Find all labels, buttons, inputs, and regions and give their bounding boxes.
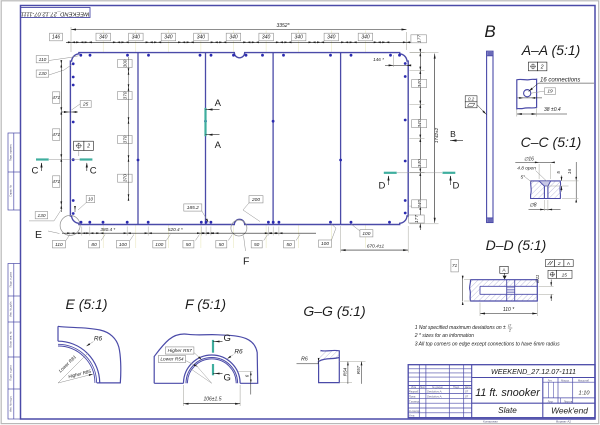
svg-text:50: 50 <box>254 242 260 248</box>
svg-text:380.4 *: 380.4 * <box>100 227 115 232</box>
svg-text:Инв. № дубл.: Инв. № дубл. <box>9 301 13 317</box>
svg-text:G–G (5:1): G–G (5:1) <box>303 303 365 319</box>
svg-text:71: 71 <box>452 263 458 268</box>
svg-text:1742±2: 1742±2 <box>434 127 439 143</box>
svg-text:100: 100 <box>321 241 329 247</box>
svg-text:Slate: Slate <box>498 406 517 415</box>
svg-text:C–C (5:1): C–C (5:1) <box>521 134 582 150</box>
svg-text:C: C <box>32 166 39 177</box>
svg-text:340: 340 <box>361 35 370 41</box>
svg-text:WEEKEND_27.12.07-1111: WEEKEND_27.12.07-1111 <box>491 367 576 376</box>
svg-text:0.2: 0.2 <box>468 97 475 102</box>
svg-text:110: 110 <box>39 57 47 63</box>
svg-text:370: 370 <box>123 174 128 182</box>
svg-text:1:10: 1:10 <box>579 390 591 396</box>
svg-text:D–D (5:1): D–D (5:1) <box>486 237 547 253</box>
svg-text:Lower R54: Lower R54 <box>160 357 184 363</box>
svg-text:38 ±0.4: 38 ±0.4 <box>544 107 561 113</box>
svg-text:19: 19 <box>547 89 553 95</box>
svg-text:340: 340 <box>295 35 304 41</box>
svg-text:Копировал: Копировал <box>483 420 498 424</box>
svg-text:100: 100 <box>362 231 370 237</box>
svg-text:№ докум.: № докум. <box>432 386 444 389</box>
svg-text:A: A <box>215 140 222 151</box>
svg-text:Serdobov A.: Serdobov A. <box>427 394 443 398</box>
svg-text:Н.контр.: Н.контр. <box>409 409 421 413</box>
svg-text:110 *: 110 * <box>503 307 515 313</box>
svg-text:471: 471 <box>52 132 60 137</box>
svg-text:Serdobov A.: Serdobov A. <box>427 390 443 394</box>
svg-text:D: D <box>453 181 460 192</box>
svg-text:340: 340 <box>327 35 336 41</box>
svg-text:07: 07 <box>465 394 469 398</box>
svg-text:4.8 open: 4.8 open <box>517 165 536 171</box>
svg-text:471: 471 <box>52 95 60 100</box>
svg-text:E: E <box>35 229 42 241</box>
svg-text:∅11: ∅11 <box>535 274 540 283</box>
svg-text:R6: R6 <box>301 357 308 363</box>
svg-text:Утв.: Утв. <box>409 414 416 418</box>
svg-text:Week'end: Week'end <box>551 406 588 416</box>
svg-text:Справ. №: Справ. № <box>9 185 13 197</box>
svg-text:16: 16 <box>567 169 572 175</box>
svg-text:C: C <box>90 166 97 177</box>
svg-text:3352*: 3352* <box>276 23 290 29</box>
svg-text:Подп. и дата: Подп. и дата <box>9 365 13 381</box>
svg-text:2: 2 <box>86 144 90 150</box>
svg-text:15: 15 <box>562 272 568 278</box>
svg-text:146: 146 <box>52 35 61 41</box>
svg-text:D: D <box>379 181 386 192</box>
svg-text:340: 340 <box>197 35 206 41</box>
svg-text:100: 100 <box>119 242 127 248</box>
svg-text:∅8: ∅8 <box>529 202 536 208</box>
svg-text:106±1.5: 106±1.5 <box>203 397 221 403</box>
svg-text:07: 07 <box>465 390 469 394</box>
svg-text:Дата: Дата <box>465 385 471 389</box>
svg-text:520.4 *: 520.4 * <box>168 227 183 232</box>
svg-text:2 * sizes for an information: 2 * sizes for an information <box>414 333 474 339</box>
svg-text:130: 130 <box>38 71 46 77</box>
svg-text:340: 340 <box>132 35 141 41</box>
svg-text:340: 340 <box>417 119 423 127</box>
svg-text:Листов: Листов <box>564 400 573 404</box>
svg-text:Higher R57: Higher R57 <box>168 348 193 354</box>
svg-text:3 All top corners on edge exc: 3 All top corners on edge except connect… <box>415 342 560 348</box>
svg-text:Формат А2: Формат А2 <box>556 420 571 424</box>
svg-text:340: 340 <box>99 35 108 41</box>
svg-text:F (5:1): F (5:1) <box>185 296 226 312</box>
svg-text:Разраб.: Разраб. <box>409 390 419 394</box>
svg-text:A: A <box>215 98 222 109</box>
svg-text:300: 300 <box>123 59 128 67</box>
svg-text:340: 340 <box>417 79 423 87</box>
svg-text:1 Not specified maximum devia: 1 Not specified maximum deviations on ± <box>415 325 506 331</box>
svg-text:Подп. и дата: Подп. и дата <box>9 272 13 288</box>
svg-text:∅16: ∅16 <box>524 157 534 163</box>
svg-text:Масса: Масса <box>561 378 569 382</box>
svg-text:5: 5 <box>556 171 561 174</box>
svg-text:340: 340 <box>262 35 271 41</box>
svg-text:Инв. № подл.: Инв. № подл. <box>9 396 13 412</box>
svg-text:11 ft. snooker: 11 ft. snooker <box>475 387 540 399</box>
svg-text:370: 370 <box>123 135 128 143</box>
svg-text:80: 80 <box>91 242 97 248</box>
svg-text:Подп.: Подп. <box>453 385 460 389</box>
svg-text:370: 370 <box>123 91 128 99</box>
svg-text:R6: R6 <box>234 348 243 355</box>
svg-text:130: 130 <box>37 213 45 219</box>
svg-text:10: 10 <box>88 197 94 202</box>
svg-text:340: 340 <box>229 35 238 41</box>
svg-text:100: 100 <box>155 242 163 248</box>
svg-text:Масштаб: Масштаб <box>578 378 590 382</box>
svg-text:G: G <box>224 333 231 344</box>
svg-text:A–A (5:1): A–A (5:1) <box>521 42 581 58</box>
svg-text:110: 110 <box>55 242 63 248</box>
svg-text:177: 177 <box>416 34 422 42</box>
svg-text:Лист: Лист <box>420 385 426 389</box>
svg-text:E (5:1): E (5:1) <box>65 296 107 312</box>
svg-text:16 connections: 16 connections <box>540 77 580 83</box>
svg-text:340: 340 <box>417 199 423 207</box>
svg-text:25: 25 <box>82 102 89 108</box>
svg-text:2: 2 <box>557 261 561 267</box>
svg-text:Изм: Изм <box>411 385 416 389</box>
svg-text:Пров.: Пров. <box>409 394 417 398</box>
svg-text:670.4±1: 670.4±1 <box>367 243 385 249</box>
svg-text:50: 50 <box>219 242 225 248</box>
svg-text:146 *: 146 * <box>373 57 384 62</box>
svg-text:2: 2 <box>508 328 511 332</box>
svg-text:340: 340 <box>164 35 173 41</box>
svg-text:5°: 5° <box>521 175 526 181</box>
svg-text:2: 2 <box>540 64 544 70</box>
svg-text:R54: R54 <box>342 367 347 376</box>
svg-text:340: 340 <box>417 159 423 167</box>
svg-text:G: G <box>224 373 231 384</box>
svg-text:185.2: 185.2 <box>187 205 199 211</box>
svg-text:F: F <box>243 256 249 268</box>
svg-text:50: 50 <box>286 242 292 248</box>
svg-text:B: B <box>450 129 456 139</box>
svg-text:Лист: Лист <box>548 400 554 404</box>
svg-text:R6: R6 <box>94 335 103 342</box>
svg-text:Лит.: Лит. <box>548 378 553 382</box>
svg-text:471: 471 <box>52 179 60 184</box>
svg-text:B: B <box>484 22 495 41</box>
svg-text:Взам. инв. №: Взам. инв. № <box>9 331 13 347</box>
svg-text:WEEKEND_27.12.07-1111: WEEKEND_27.12.07-1111 <box>21 11 90 17</box>
svg-text:177: 177 <box>414 215 420 223</box>
svg-text:50: 50 <box>186 242 192 248</box>
svg-text:R57: R57 <box>356 365 361 374</box>
svg-text:Т.контр.: Т.контр. <box>409 399 421 403</box>
svg-text:200: 200 <box>251 197 260 203</box>
svg-text:Перв. примен.: Перв. примен. <box>9 144 13 162</box>
